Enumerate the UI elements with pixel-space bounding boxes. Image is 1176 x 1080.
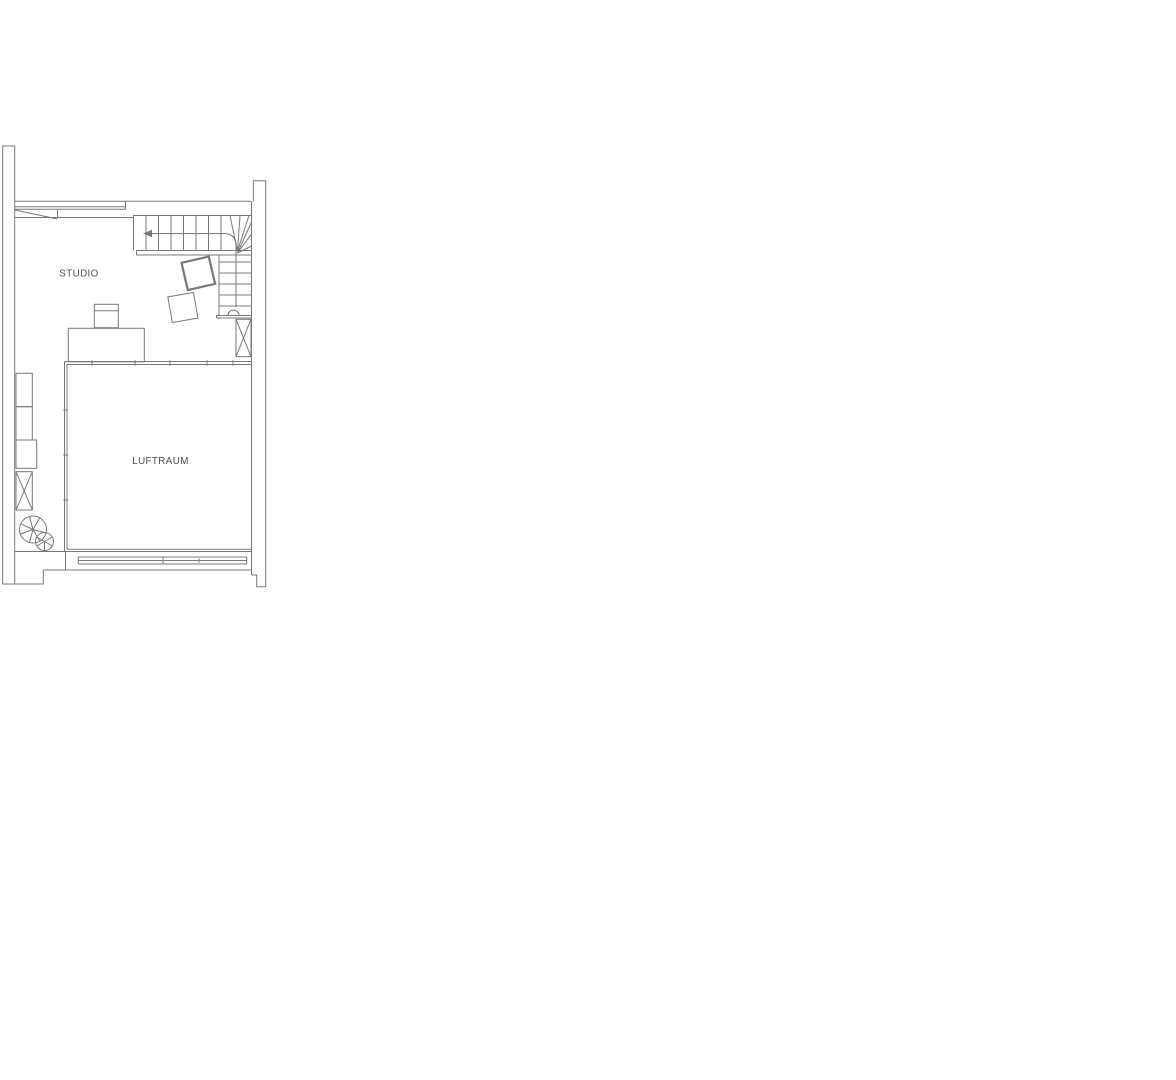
luftraum-void xyxy=(15,549,252,551)
void-bottom-edge xyxy=(15,549,252,551)
desk-chair xyxy=(94,304,118,327)
floor-plan-drawing: STUDIO LUFTRAUM xyxy=(0,0,1176,1080)
tilted-armchair-upper xyxy=(182,257,216,291)
cabinet-1 xyxy=(16,373,32,406)
room-label-luftraum: LUFTRAUM xyxy=(132,456,189,467)
window-band-top xyxy=(15,201,126,209)
desk-top xyxy=(68,328,144,362)
cabinet-2 xyxy=(16,407,32,440)
arrow-head-icon xyxy=(143,230,152,237)
desk xyxy=(68,328,144,362)
tilted-armchair-lower xyxy=(168,292,198,322)
shaft-x-icon xyxy=(236,319,251,356)
chair-seat xyxy=(94,304,118,327)
duct-shaft-x-left xyxy=(16,472,32,510)
armchair-upper xyxy=(182,257,216,291)
armchair-lower xyxy=(168,292,198,322)
duct-shaft-x-right xyxy=(236,319,251,356)
walk-line-start-circle xyxy=(228,310,239,315)
plant xyxy=(20,516,54,551)
cabinet-3 xyxy=(16,440,37,468)
exterior-walls xyxy=(3,146,266,587)
stair-winders xyxy=(230,216,252,254)
walk-line xyxy=(151,234,236,308)
window-band-bottom xyxy=(78,557,246,564)
right-wall xyxy=(252,181,266,587)
bottom-window xyxy=(66,552,247,571)
stair-bottom-edge xyxy=(217,316,252,319)
shaft-x-icon xyxy=(16,472,32,510)
page-canvas: STUDIO LUFTRAUM xyxy=(0,0,1176,1080)
stair-handrail xyxy=(137,251,252,256)
plant-large-segments xyxy=(20,517,46,543)
wall-cabinets xyxy=(16,373,37,468)
bottom-left-wall-foot xyxy=(15,570,44,584)
room-label-studio: STUDIO xyxy=(59,269,98,280)
left-wall xyxy=(3,146,15,584)
stair-treads-right-run xyxy=(219,262,252,306)
